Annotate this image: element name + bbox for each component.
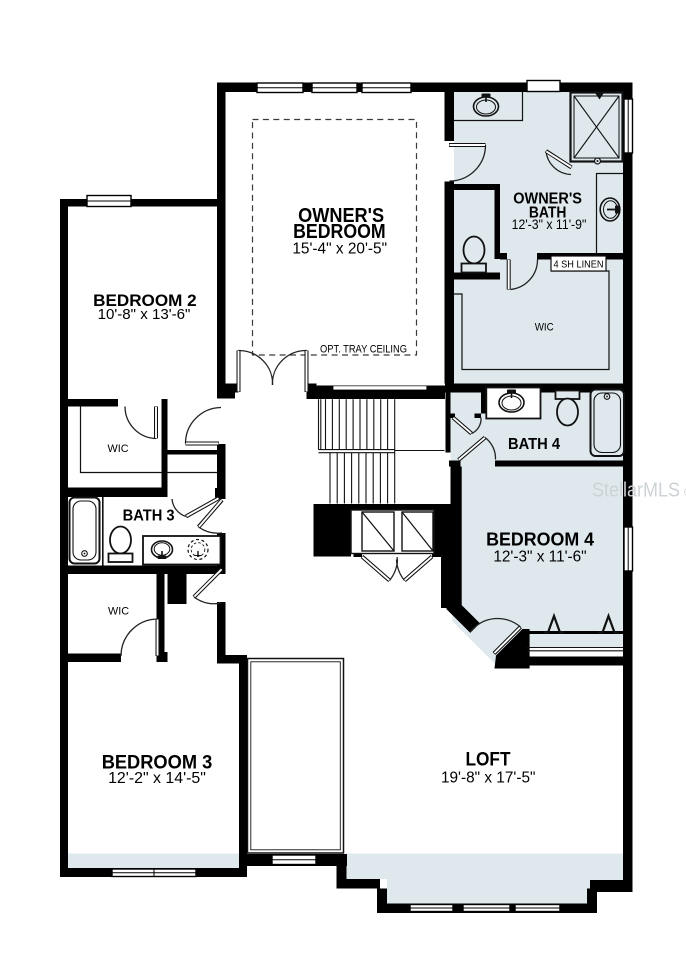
svg-text:StellarMLS: StellarMLS xyxy=(592,479,680,501)
svg-text:BEDROOM 4: BEDROOM 4 xyxy=(486,529,595,550)
svg-text:12'-2" x 14'-5": 12'-2" x 14'-5" xyxy=(108,770,206,787)
svg-text:12'-3" x 11'-6": 12'-3" x 11'-6" xyxy=(493,548,586,565)
svg-text:WIC: WIC xyxy=(535,321,554,333)
svg-text:BATH 4: BATH 4 xyxy=(508,436,560,453)
svg-text:WIC: WIC xyxy=(108,606,129,618)
svg-text:OPT. TRAY CEILING: OPT. TRAY CEILING xyxy=(320,344,407,356)
svg-text:10'-8" x 13'-6": 10'-8" x 13'-6" xyxy=(98,307,191,323)
svg-text:12'-3" x 11'-9": 12'-3" x 11'-9" xyxy=(512,216,587,232)
svg-text:LOFT: LOFT xyxy=(466,749,511,771)
svg-text:19'-8" x 17'-5": 19'-8" x 17'-5" xyxy=(441,770,536,787)
svg-text:4 SH LINEN: 4 SH LINEN xyxy=(554,260,604,271)
svg-text:WIC: WIC xyxy=(108,443,129,455)
svg-text:15'-4" x 20'-5": 15'-4" x 20'-5" xyxy=(292,241,387,258)
svg-text:BATH 3: BATH 3 xyxy=(123,508,175,525)
